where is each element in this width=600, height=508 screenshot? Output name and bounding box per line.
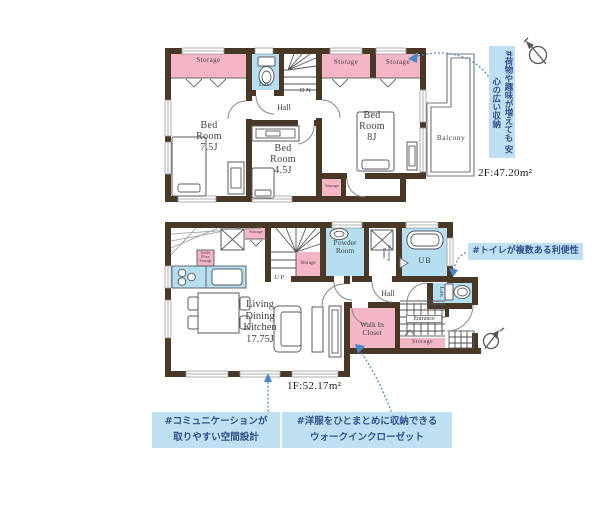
porch-tile-grid bbox=[449, 331, 474, 348]
ldk-label: Living Dining Kitchen 17.75J bbox=[226, 299, 294, 345]
stairs-up-label: UP bbox=[264, 274, 296, 281]
hall-label-1f: Hall bbox=[366, 290, 410, 299]
powder-room-label: Powder Room bbox=[323, 239, 367, 255]
bedroom-75-label: Bed Room 7.5J bbox=[177, 121, 241, 153]
compass-icon-2f bbox=[524, 38, 547, 64]
storage-label-2f-right1: Storage bbox=[322, 59, 370, 67]
balcony-outline bbox=[427, 54, 474, 176]
callout-communication: #コミュニケーションが 取りやすい空間設計 bbox=[152, 412, 280, 448]
bedroom-8-label: Bed Room 8J bbox=[341, 111, 403, 143]
desk-icon-75 bbox=[228, 162, 244, 194]
cupboard-icon bbox=[221, 229, 244, 250]
dresser-icon-45 bbox=[252, 126, 299, 141]
floor2-area-label: 2F:47.20m² bbox=[478, 168, 564, 180]
storage-label-2f-left: Storage bbox=[171, 57, 246, 65]
callout-wic: #洋服をひとまとめに収納できる ウォークインクローゼット bbox=[282, 412, 452, 448]
bath-label: UB bbox=[404, 257, 446, 266]
storage-label-2f-right2: Storage bbox=[376, 59, 420, 67]
bedroom-45-label: Bed Room 4.5J bbox=[251, 144, 315, 176]
floor1-area-label: 1F:52.17m² bbox=[287, 381, 373, 393]
floor2-stairs-icon bbox=[284, 54, 316, 90]
floor2-closet-fronts bbox=[171, 78, 420, 87]
leader-line-wic bbox=[355, 344, 391, 411]
entrance-label: Entrance bbox=[406, 315, 442, 323]
storage-label-entrance: Storage bbox=[400, 339, 445, 345]
lav-label-1f: Lav. bbox=[435, 276, 445, 308]
balcony-label: Balcony bbox=[428, 134, 474, 142]
cabinet-icon-8 bbox=[407, 142, 417, 170]
callout-storage-2f: #荷物や趣味が増えても 安心の広い収納 bbox=[489, 46, 515, 158]
stairs-down-label: DN bbox=[292, 87, 320, 94]
storage-label-under-stairs: Storage bbox=[296, 261, 320, 266]
callout-toilet: #トイレが複数ある利便性 bbox=[468, 243, 583, 260]
floor-plan-page: Storage Lav. DN Storage Storage Hall Bed… bbox=[0, 0, 600, 508]
walk-in-closet-label: Walk In Closet bbox=[347, 321, 397, 337]
toilet-icon-1f bbox=[445, 284, 470, 300]
dressing-room-label: Dressing Room bbox=[373, 233, 391, 273]
hall-label-2f: Hall bbox=[263, 104, 305, 113]
lav-label-2f: Lav. bbox=[249, 81, 281, 89]
compass-icon-1f bbox=[484, 328, 505, 349]
storage-label-1f-top: Storage bbox=[245, 230, 267, 235]
storage-label-2f-small: Storage bbox=[321, 184, 343, 189]
tv-board-icon bbox=[312, 306, 341, 357]
underfloor-storage-label: Under Floor Storage bbox=[197, 251, 214, 264]
leader-line-communication bbox=[264, 373, 272, 411]
